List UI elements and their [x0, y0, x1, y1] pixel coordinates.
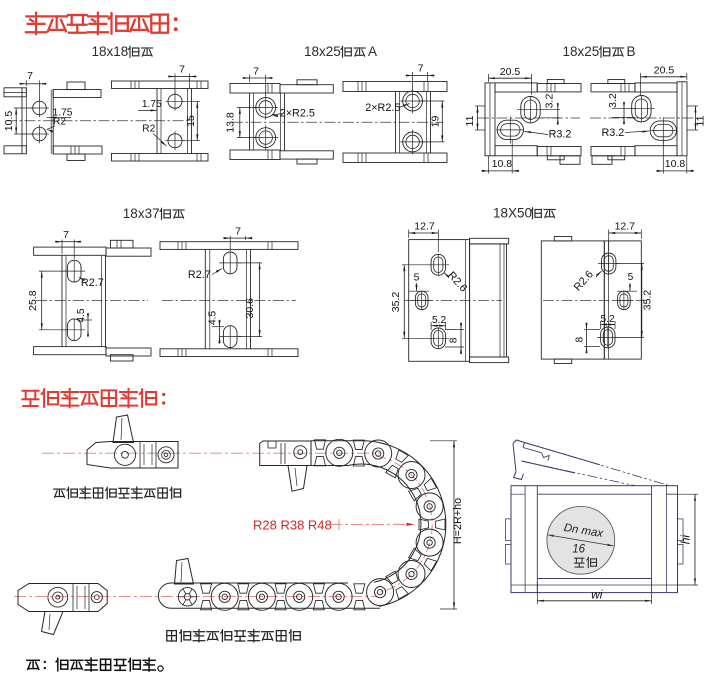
- svg-text:13.8: 13.8: [224, 112, 236, 133]
- svg-text:20.5: 20.5: [500, 66, 521, 78]
- svg-text:1.75: 1.75: [142, 99, 162, 110]
- svg-text:30.6: 30.6: [244, 298, 256, 319]
- svg-text:20.5: 20.5: [654, 65, 675, 77]
- svg-text:R2: R2: [53, 116, 66, 127]
- svg-text:8: 8: [574, 336, 585, 342]
- svg-text:7: 7: [418, 63, 424, 75]
- svg-text:R2.7: R2.7: [188, 269, 211, 281]
- svg-text:15: 15: [185, 115, 197, 127]
- svg-text:10.8: 10.8: [492, 158, 513, 170]
- svg-text:R2.7: R2.7: [81, 277, 104, 289]
- svg-text:10.8: 10.8: [665, 158, 686, 170]
- svg-text:3.2: 3.2: [543, 94, 555, 109]
- svg-text:25.8: 25.8: [27, 290, 39, 311]
- svg-text:R28 R38 R48: R28 R38 R48: [253, 518, 332, 533]
- svg-text:8: 8: [449, 337, 460, 343]
- svg-text:18x25: 18x25: [304, 44, 341, 59]
- svg-text:18x37: 18x37: [123, 206, 160, 221]
- svg-text:wi: wi: [591, 588, 603, 602]
- svg-text:11: 11: [464, 115, 476, 126]
- svg-text:19: 19: [429, 116, 441, 128]
- svg-text:R2: R2: [142, 124, 155, 135]
- svg-text:16: 16: [572, 543, 585, 555]
- svg-text:7: 7: [235, 226, 241, 238]
- svg-text:12.7: 12.7: [414, 221, 435, 233]
- svg-text:7: 7: [27, 70, 33, 82]
- svg-text:B: B: [627, 44, 636, 59]
- svg-text:11: 11: [694, 115, 706, 126]
- svg-text:5.2: 5.2: [601, 314, 615, 325]
- svg-text:12.7: 12.7: [615, 221, 636, 233]
- svg-text:4.5: 4.5: [208, 310, 219, 324]
- svg-text:H=2R+ho: H=2R+ho: [452, 498, 464, 544]
- svg-text:18X50: 18X50: [493, 206, 532, 221]
- svg-text:3.2: 3.2: [607, 93, 619, 108]
- svg-text:7: 7: [63, 229, 69, 241]
- svg-text:A: A: [368, 44, 377, 59]
- svg-text:10.5: 10.5: [3, 111, 15, 132]
- svg-text:2×R2.5: 2×R2.5: [280, 108, 315, 120]
- svg-text:hi: hi: [678, 535, 692, 545]
- svg-text:5: 5: [414, 273, 420, 284]
- svg-text:2×R2.5: 2×R2.5: [365, 102, 400, 114]
- svg-text:18x25: 18x25: [563, 44, 600, 59]
- svg-text:7: 7: [179, 64, 185, 76]
- svg-text:5.2: 5.2: [432, 315, 446, 326]
- svg-text:R3.2: R3.2: [601, 127, 624, 139]
- svg-text:35.2: 35.2: [390, 292, 402, 313]
- svg-text:5: 5: [628, 272, 634, 283]
- svg-text:R3.2: R3.2: [549, 129, 572, 141]
- svg-text:7: 7: [253, 66, 259, 78]
- svg-text:35.2: 35.2: [641, 290, 653, 311]
- svg-text:18x18: 18x18: [92, 44, 129, 59]
- svg-text:4.5: 4.5: [76, 308, 87, 322]
